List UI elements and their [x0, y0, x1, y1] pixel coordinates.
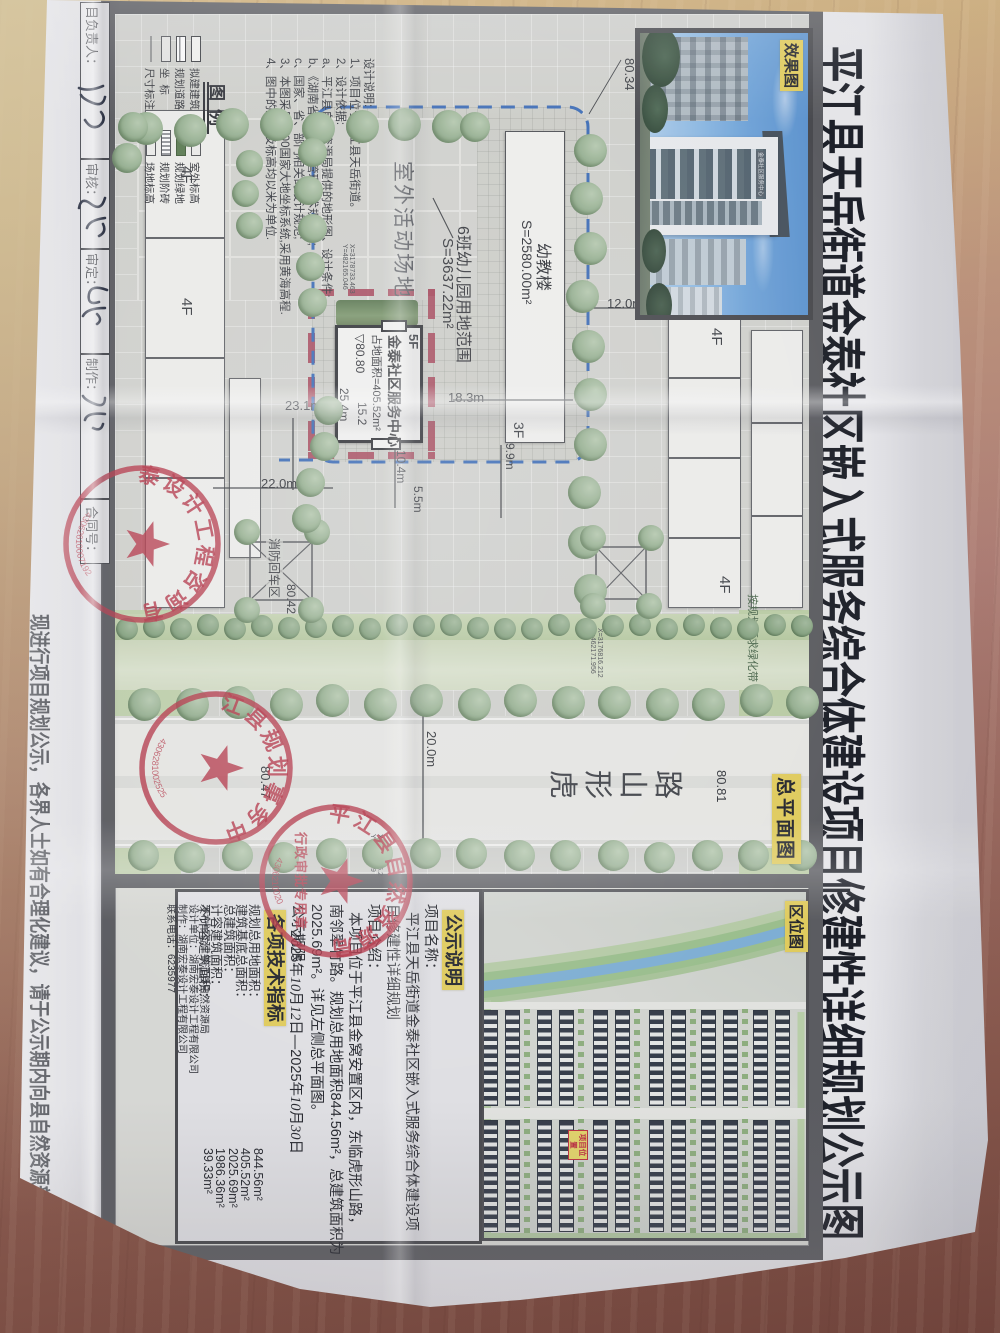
svg-text:43062610007192: 43062610007192: [74, 510, 94, 577]
svg-text:行政审批专用章: 行政审批专用章: [293, 831, 308, 930]
svg-text:4306210020: 4306210020: [270, 856, 285, 906]
svg-text:4306281002525: 4306281002525: [150, 736, 169, 799]
